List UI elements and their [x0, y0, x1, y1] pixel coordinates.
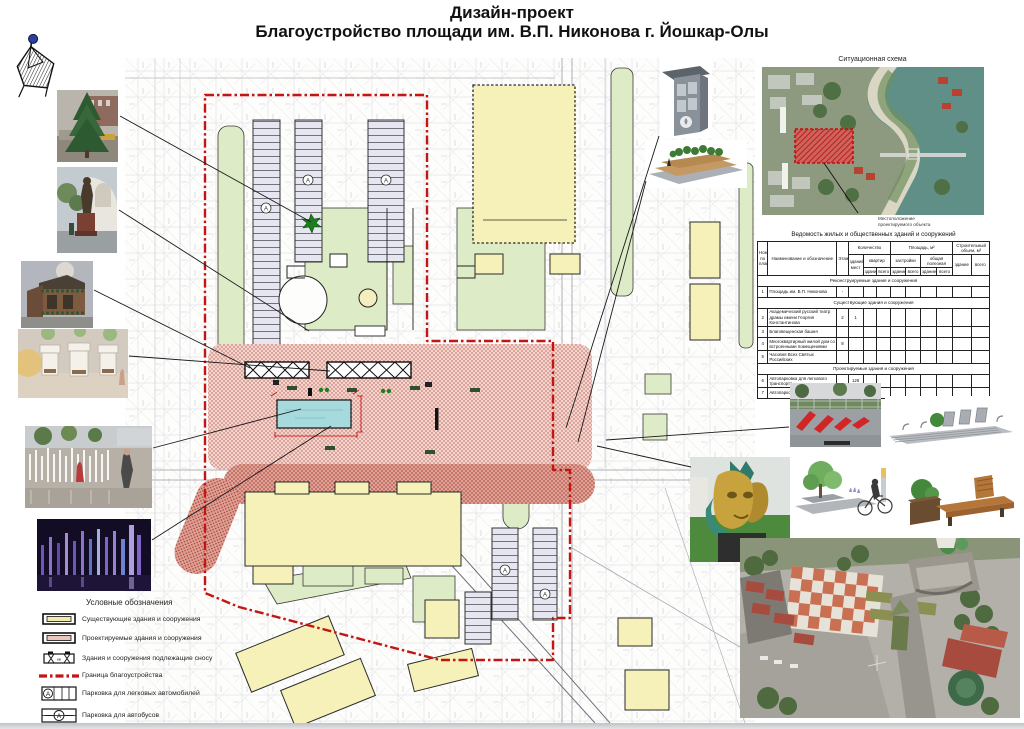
planned-building-swatch	[36, 632, 82, 644]
legend-item-planned: Проектируемые здания и сооружения	[36, 632, 266, 644]
legend-item-car-parking: А Парковка для легковых автомобилей	[36, 686, 266, 701]
project-site-highlight	[795, 129, 853, 163]
demolition-kiosk-rows	[245, 362, 411, 378]
situational-scheme-caption: Местоположение проектируемого объекта	[878, 216, 958, 227]
photo-dry-fountain	[25, 426, 152, 508]
photo-night-fountain	[37, 519, 151, 591]
photo-monument	[57, 167, 117, 253]
legend-label: Парковка для легковых автомобилей	[82, 690, 200, 697]
table-row: 1Площадь им. В.П. Никонова-	[758, 286, 990, 297]
legend-label: Проектируемые здания и сооружения	[82, 635, 202, 642]
svg-text:А: А	[57, 713, 62, 720]
render-info-kiosk	[660, 58, 712, 138]
poster-title-line1: Дизайн-проект	[0, 3, 1024, 23]
table-section-header: Реконструируемые здания и сооружения	[758, 275, 990, 286]
photo-red-benches	[790, 383, 881, 447]
checkered-plaza	[786, 566, 884, 637]
caption-line2: проектируемого объекта	[878, 222, 958, 228]
render-wooden-bench	[900, 462, 1018, 537]
legend-item-boundary: Граница благоустройства	[36, 672, 266, 679]
table-row: 4Многоквартирный жилой дом со встроенным…	[758, 338, 990, 351]
legend-label: Граница благоустройства	[82, 672, 162, 679]
buildings-table-wrap: Номер по плануНаименование и обозначение…	[757, 241, 992, 399]
svg-text:А: А	[306, 179, 310, 185]
legend-label: Здания и сооружения подлежащие сносу	[82, 655, 212, 662]
legend-item-bus-parking: А Парковка для автобусов	[36, 708, 266, 723]
svg-text:А: А	[543, 593, 547, 599]
compass-north-arrow-icon	[8, 34, 64, 100]
situational-scheme-aerial-photo	[762, 67, 984, 215]
legend: Условные обозначения Существующие здания…	[36, 598, 266, 729]
situational-scheme-title: Ситуационная схема	[760, 56, 985, 63]
photo-aerial-3d-view	[740, 538, 1020, 718]
page-bottom-edge	[0, 723, 1024, 729]
render-bench-planter	[645, 140, 747, 188]
table-row: 5Часовня Всех Святых Российских	[758, 351, 990, 364]
svg-text:кв: кв	[57, 657, 61, 662]
photo-spruce-tree	[57, 90, 118, 162]
legend-label: Существующие здания и сооружения	[82, 616, 200, 623]
legend-title: Условные обозначения	[86, 598, 266, 607]
svg-text:А: А	[384, 179, 388, 185]
design-poster: Дизайн-проект Благоустройство площади им…	[0, 0, 1024, 729]
svg-text:А: А	[503, 569, 507, 575]
legend-label: Парковка для автобусов	[82, 712, 159, 719]
table-section-header: Существующие здания и сооружения	[758, 297, 990, 308]
table-row: 2Академический русский театр драмы имени…	[758, 308, 990, 327]
table-row: 3Благовещенская башня	[758, 327, 990, 338]
render-tree-planter-bike	[793, 458, 911, 528]
car-parking-symbol: А	[36, 686, 82, 701]
svg-text:А: А	[46, 691, 51, 698]
legend-item-demolition: кв Здания и сооружения подлежащие сносу	[36, 651, 266, 665]
demolition-building-swatch: кв	[36, 651, 82, 665]
svg-text:А: А	[264, 207, 268, 213]
photo-wooden-kiosks	[21, 261, 93, 328]
bus-parking-symbol: А	[36, 708, 82, 723]
buildings-table: Номер по плануНаименование и обозначение…	[757, 241, 990, 399]
render-trade-pavilions	[18, 329, 128, 398]
render-metal-bench	[885, 396, 1018, 450]
table-section-header: Проектируемые здания и сооружения	[758, 364, 990, 375]
legend-item-existing: Существующие здания и сооружения	[36, 613, 266, 625]
poster-title-line2: Благоустройство площади им. В.П. Никонов…	[0, 22, 1024, 42]
existing-building-swatch	[36, 613, 82, 625]
boundary-line-swatch	[36, 673, 82, 679]
stage-symbol	[435, 408, 439, 430]
buildings-table-title: Ведомость жилых и общественных зданий и …	[757, 231, 990, 238]
